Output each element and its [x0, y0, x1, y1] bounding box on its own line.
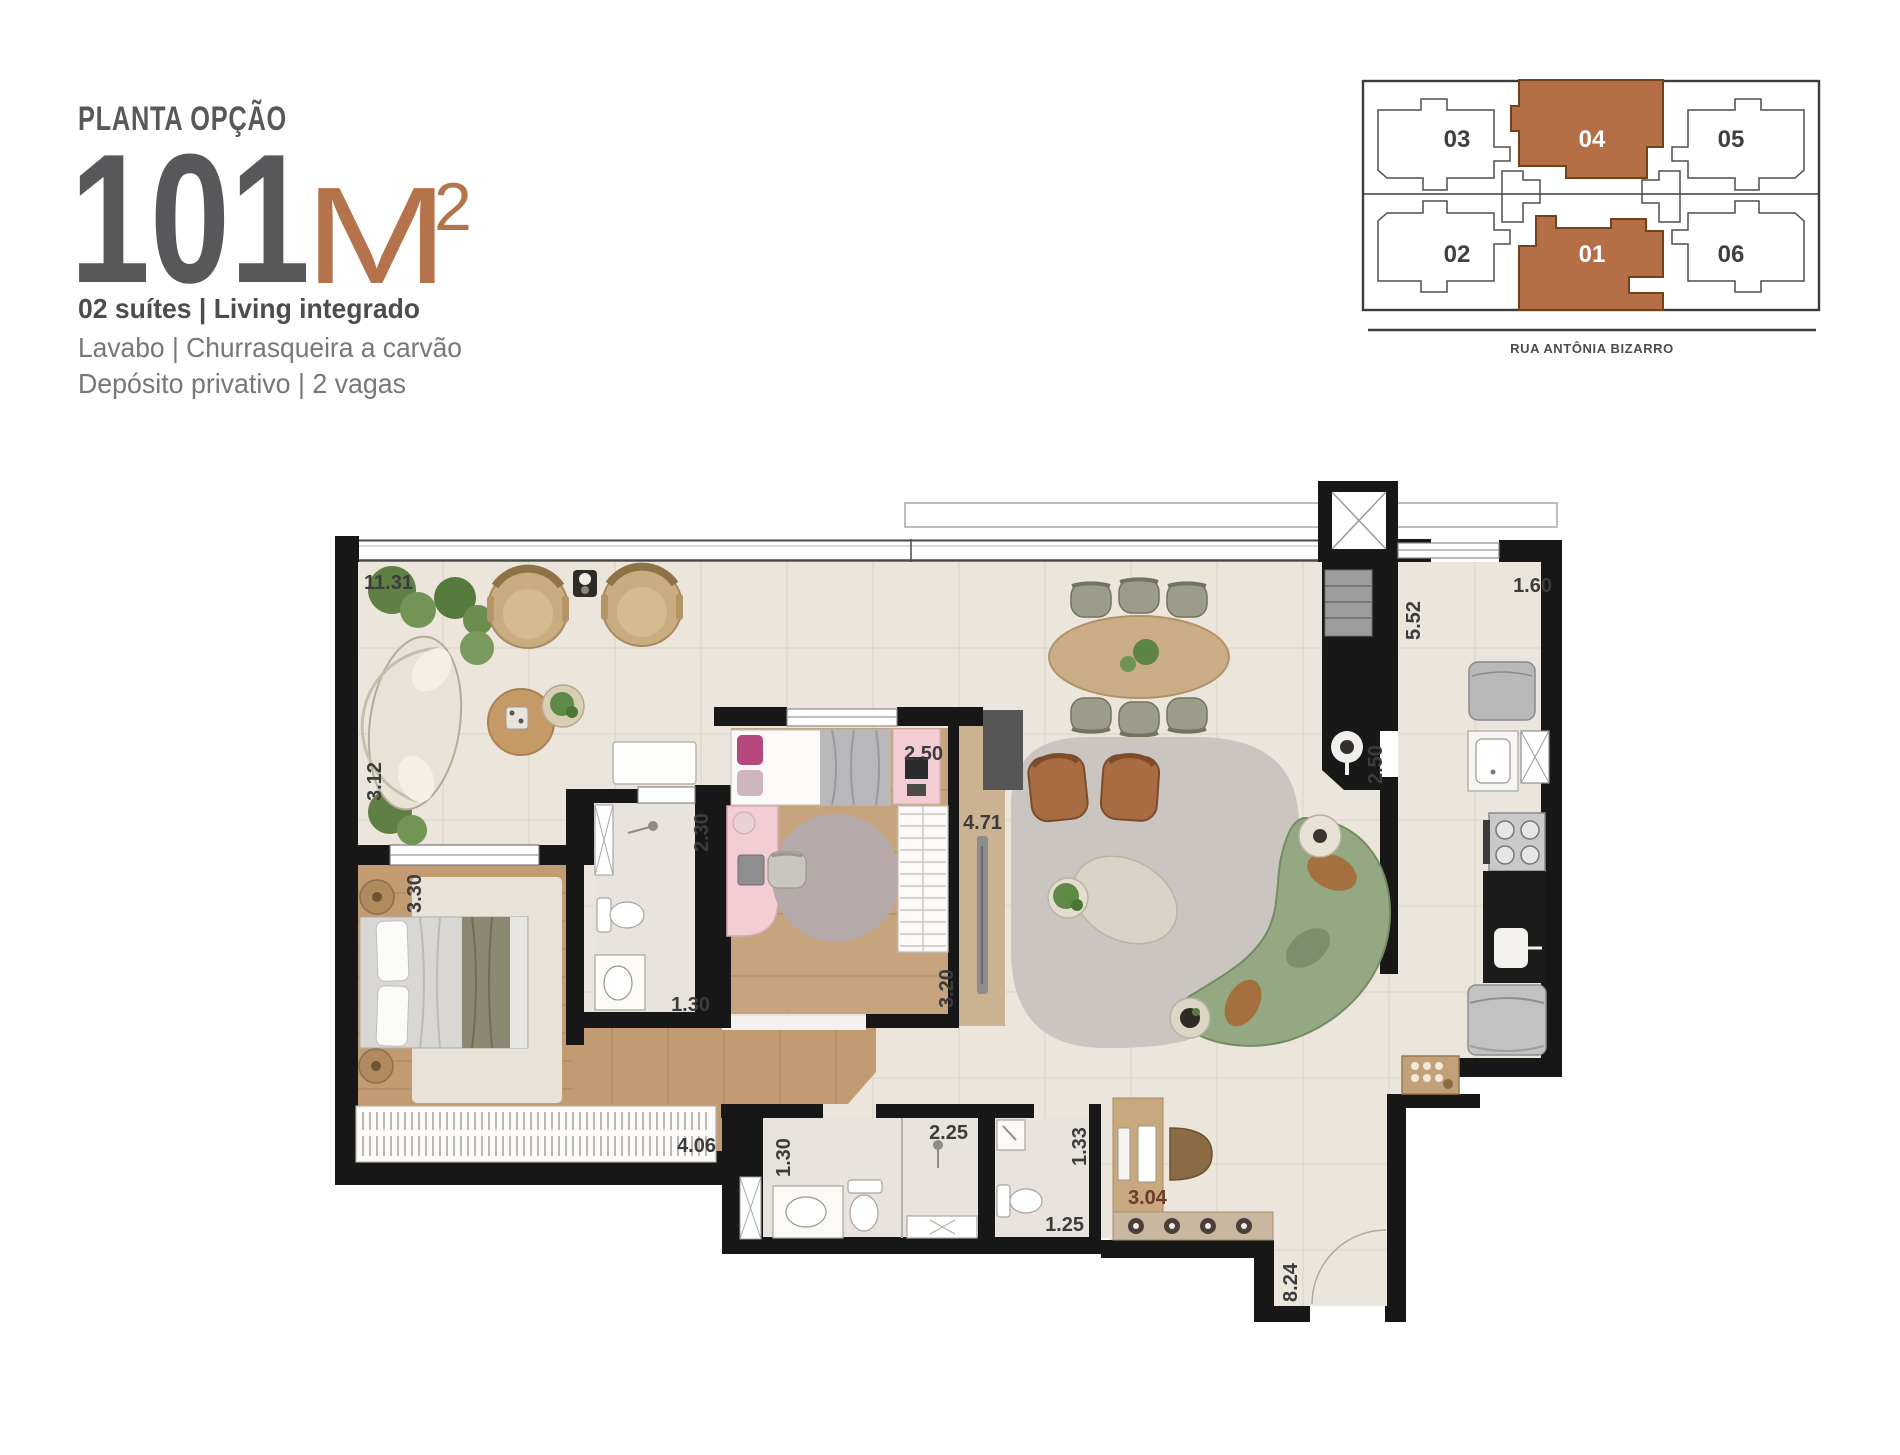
svg-text:04: 04: [1579, 126, 1606, 153]
svg-text:RUA ANTÔNIA BIZARRO: RUA ANTÔNIA BIZARRO: [1510, 341, 1674, 356]
svg-text:02: 02: [1444, 241, 1471, 268]
svg-text:1.25: 1.25: [1045, 1214, 1084, 1236]
svg-text:3.20: 3.20: [936, 969, 958, 1008]
svg-text:1.33: 1.33: [1069, 1127, 1091, 1166]
svg-text:2.25: 2.25: [929, 1122, 968, 1144]
svg-text:2.50: 2.50: [1365, 745, 1387, 784]
svg-text:06: 06: [1718, 241, 1745, 268]
svg-text:Depósito privativo | 2 vagas: Depósito privativo | 2 vagas: [78, 368, 406, 399]
svg-text:3.30: 3.30: [404, 874, 426, 913]
svg-text:1.60: 1.60: [1513, 575, 1552, 597]
svg-text:4.06: 4.06: [677, 1135, 716, 1157]
svg-text:M: M: [304, 159, 449, 313]
svg-text:2.30: 2.30: [691, 813, 713, 852]
svg-text:1.30: 1.30: [773, 1138, 795, 1177]
svg-text:8.24: 8.24: [1280, 1262, 1302, 1302]
svg-text:11.31: 11.31: [364, 572, 413, 594]
svg-text:Lavabo | Churrasqueira a carvã: Lavabo | Churrasqueira a carvão: [78, 332, 462, 363]
svg-text:01: 01: [1579, 241, 1606, 268]
svg-text:02 suítes | Living integrado: 02 suítes | Living integrado: [78, 293, 420, 324]
svg-text:3.04: 3.04: [1128, 1187, 1168, 1209]
svg-text:5.52: 5.52: [1403, 601, 1425, 640]
svg-text:101: 101: [70, 115, 310, 321]
svg-text:4.71: 4.71: [963, 812, 1002, 834]
svg-text:2: 2: [434, 169, 472, 245]
svg-text:1.30: 1.30: [671, 994, 710, 1016]
svg-text:2.50: 2.50: [904, 743, 943, 765]
svg-text:05: 05: [1718, 126, 1745, 153]
svg-text:03: 03: [1444, 126, 1471, 153]
svg-text:3.12: 3.12: [364, 762, 386, 801]
